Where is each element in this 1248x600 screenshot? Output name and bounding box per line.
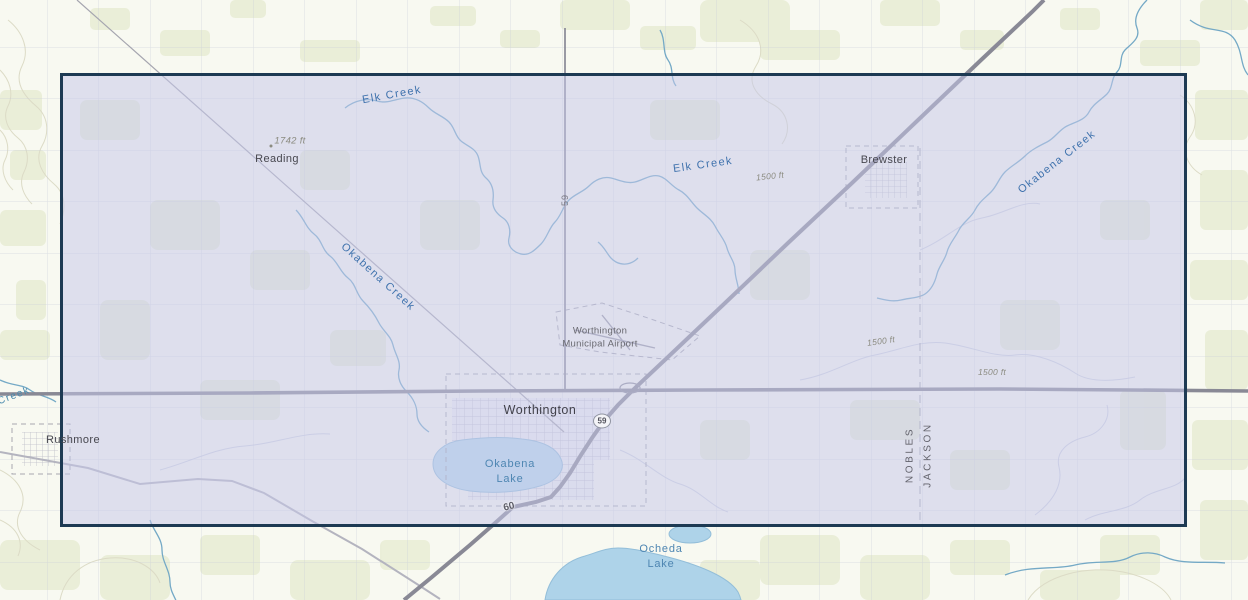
ocheda-pond — [669, 525, 711, 543]
selection-rectangle[interactable] — [60, 73, 1187, 527]
map-canvas[interactable]: Elk Creek 1742 ft Reading Elk Creek 1500… — [0, 0, 1248, 600]
